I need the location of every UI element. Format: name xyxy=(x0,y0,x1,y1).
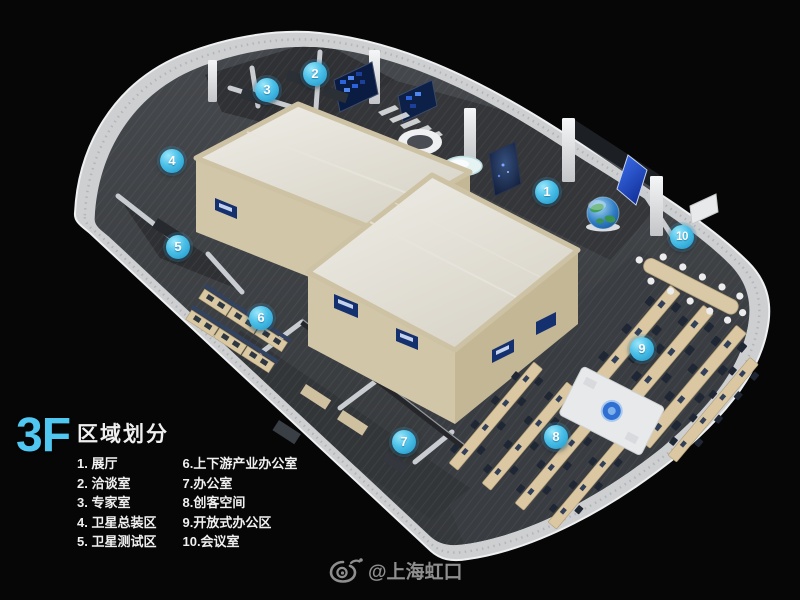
floor-label: 3F xyxy=(16,413,70,552)
legend-item: 7.办公室 xyxy=(182,474,297,494)
white-display-board xyxy=(690,194,718,224)
legend-item: 6.上下游产业办公室 xyxy=(182,454,297,474)
floorplan-render: 12345678910 3F 区域划分 1. 展厅2. 洽谈室3. 专家室4. … xyxy=(0,0,800,600)
legend-item: 5. 卫星测试区 xyxy=(77,532,156,552)
legend-item: 9.开放式办公区 xyxy=(182,513,297,533)
legend-item: 3. 专家室 xyxy=(77,493,156,513)
legend-column2: 6.上下游产业办公室7.办公室8.创客空间9.开放式办公区10.会议室 xyxy=(182,454,297,552)
watermark-text: @上海虹口 xyxy=(368,557,463,584)
legend: 3F 区域划分 1. 展厅2. 洽谈室3. 专家室4. 卫星总装区5. 卫星测试… xyxy=(16,413,297,552)
legend-item: 10.会议室 xyxy=(182,532,297,552)
legend-item: 8.创客空间 xyxy=(182,493,297,513)
legend-item: 1. 展厅 xyxy=(77,454,156,474)
legend-column1: 1. 展厅2. 洽谈室3. 专家室4. 卫星总装区5. 卫星测试区 xyxy=(77,454,156,552)
legend-title: 区域划分 xyxy=(77,418,297,448)
legend-item: 4. 卫星总装区 xyxy=(77,513,156,533)
legend-item: 2. 洽谈室 xyxy=(77,474,156,494)
earth-globe-model xyxy=(586,197,620,232)
weibo-icon xyxy=(329,556,365,584)
watermark: @上海虹口 xyxy=(329,556,463,584)
